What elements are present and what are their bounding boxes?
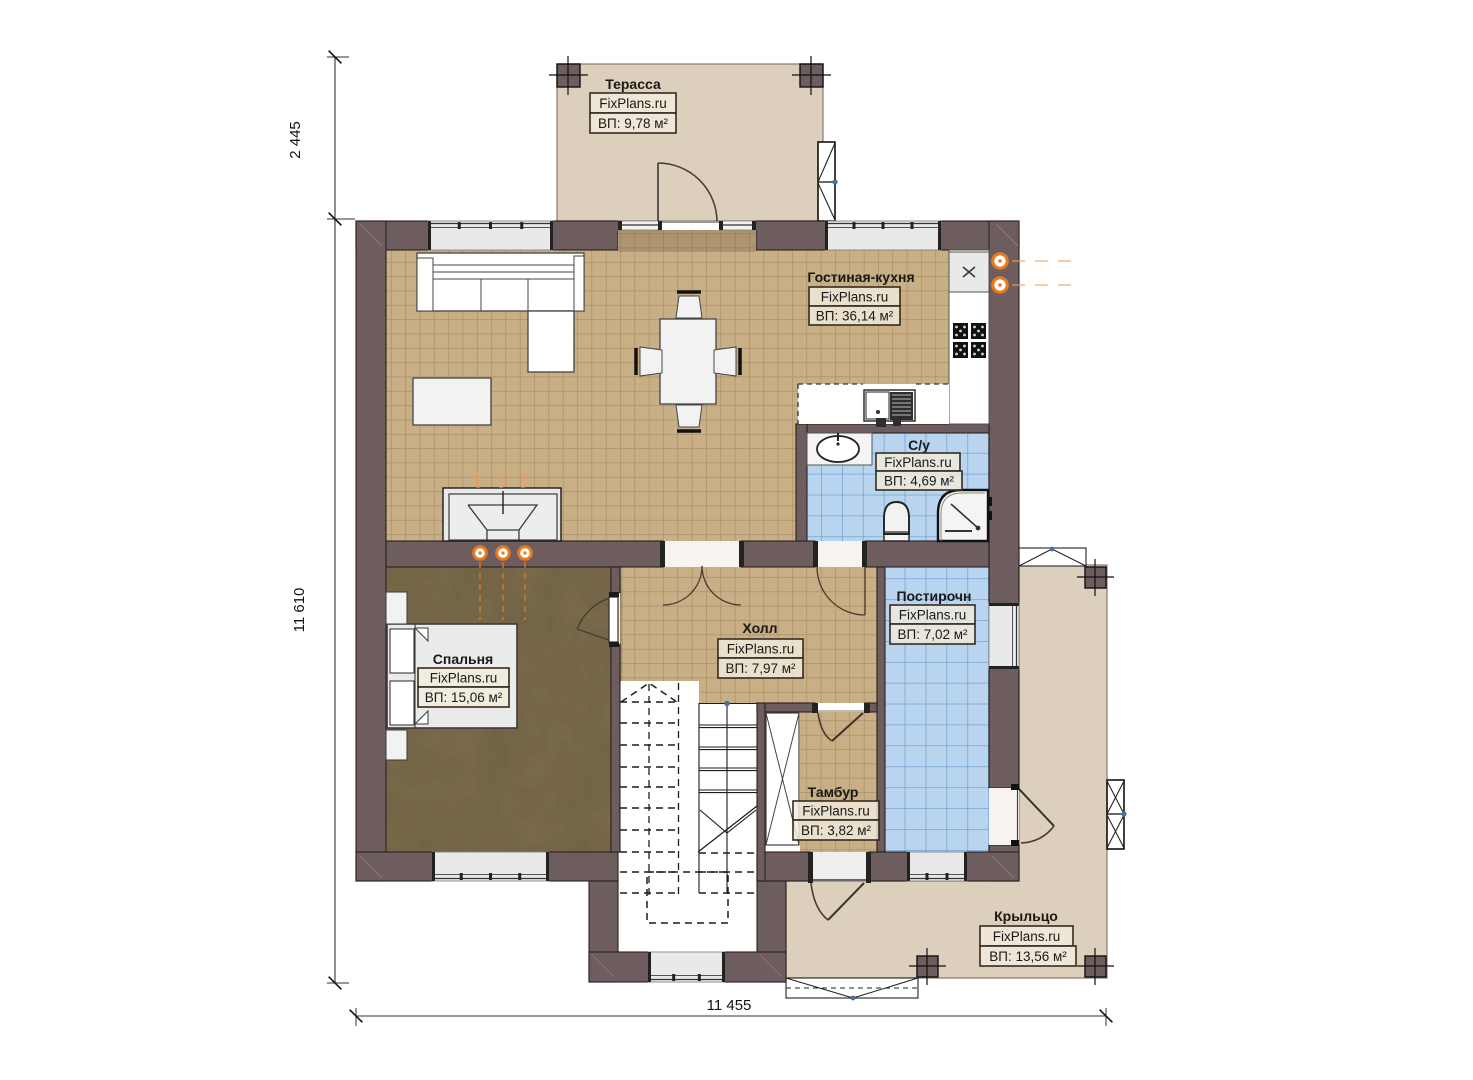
svg-text:2 445: 2 445 xyxy=(287,121,304,159)
svg-text:11 610: 11 610 xyxy=(291,588,308,633)
svg-text:ВП: 7,97 м²: ВП: 7,97 м² xyxy=(725,661,796,676)
svg-text:FixPlans.ru: FixPlans.ru xyxy=(430,671,498,686)
svg-text:Холл: Холл xyxy=(742,620,777,636)
svg-text:Постирочн: Постирочн xyxy=(896,588,971,604)
svg-text:ВП: 36,14 м²: ВП: 36,14 м² xyxy=(816,309,894,324)
svg-text:ВП: 7,02 м²: ВП: 7,02 м² xyxy=(897,627,968,642)
svg-text:FixPlans.ru: FixPlans.ru xyxy=(899,608,967,623)
svg-text:Крыльцо: Крыльцо xyxy=(994,908,1058,924)
svg-text:Гостиная-кухня: Гостиная-кухня xyxy=(807,269,914,285)
svg-text:FixPlans.ru: FixPlans.ru xyxy=(802,804,870,819)
svg-text:ВП: 9,78 м²: ВП: 9,78 м² xyxy=(598,116,669,131)
svg-text:FixPlans.ru: FixPlans.ru xyxy=(821,290,889,305)
svg-text:Спальня: Спальня xyxy=(433,651,493,667)
svg-text:Терасса: Терасса xyxy=(605,76,661,92)
svg-text:ВП: 3,82 м²: ВП: 3,82 м² xyxy=(801,823,872,838)
svg-text:11 455: 11 455 xyxy=(707,997,752,1014)
svg-text:FixPlans.ru: FixPlans.ru xyxy=(884,455,952,470)
svg-text:С/у: С/у xyxy=(908,437,930,453)
svg-text:FixPlans.ru: FixPlans.ru xyxy=(993,929,1061,944)
svg-text:FixPlans.ru: FixPlans.ru xyxy=(599,96,667,111)
svg-text:ВП: 15,06 м²: ВП: 15,06 м² xyxy=(425,690,503,705)
svg-text:ВП: 13,56 м²: ВП: 13,56 м² xyxy=(989,949,1067,964)
svg-text:Тамбур: Тамбур xyxy=(808,784,859,800)
svg-text:FixPlans.ru: FixPlans.ru xyxy=(727,642,795,657)
svg-text:ВП: 4,69 м²: ВП: 4,69 м² xyxy=(884,474,955,489)
